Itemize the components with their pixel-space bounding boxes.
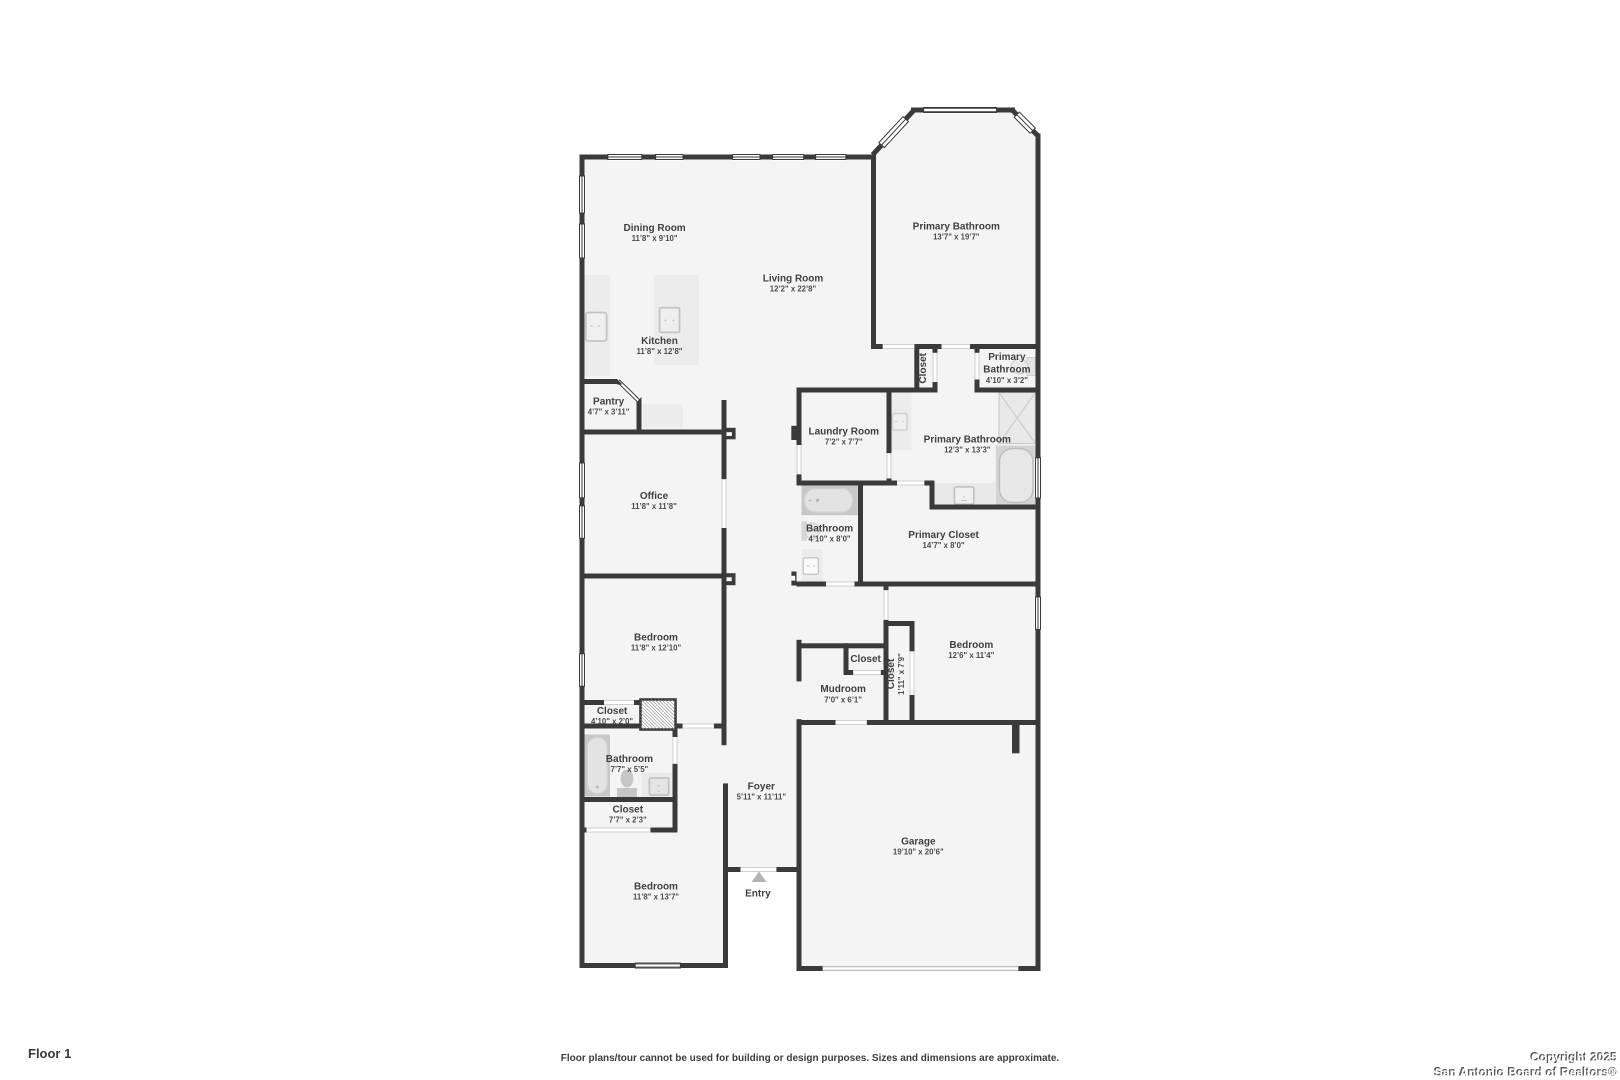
svg-text:11’8" x 9’10": 11’8" x 9’10" <box>632 234 678 243</box>
svg-text:12’2" x 22’8": 12’2" x 22’8" <box>770 285 817 294</box>
svg-text:Closet: Closet <box>613 804 644 815</box>
svg-text:Floor 1: Floor 1 <box>28 1046 71 1061</box>
svg-text:Bedroom: Bedroom <box>634 632 678 643</box>
svg-text:11’8" x 13’7": 11’8" x 13’7" <box>633 893 679 902</box>
svg-text:Closet: Closet <box>597 706 628 717</box>
svg-text:19’10" x 20’6": 19’10" x 20’6" <box>893 848 944 857</box>
svg-text:5’11" x 11’11": 5’11" x 11’11" <box>737 793 787 802</box>
svg-text:Office: Office <box>640 491 669 502</box>
svg-text:Garage: Garage <box>901 836 936 847</box>
svg-text:14’7" x 8’0": 14’7" x 8’0" <box>923 541 965 550</box>
svg-text:13’7" x 19’7": 13’7" x 19’7" <box>933 233 980 242</box>
svg-text:San Antonio Board of Realtors®: San Antonio Board of Realtors® <box>1435 1066 1618 1080</box>
svg-text:Dining Room: Dining Room <box>623 223 685 234</box>
svg-text:Living Room: Living Room <box>763 274 824 285</box>
svg-text:Bedroom: Bedroom <box>949 640 993 651</box>
svg-text:4’10" x 3’2": 4’10" x 3’2" <box>986 376 1028 385</box>
svg-text:Pantry: Pantry <box>593 397 625 408</box>
svg-text:Kitchen: Kitchen <box>641 336 678 347</box>
svg-text:11’8" x 12’8": 11’8" x 12’8" <box>637 347 683 356</box>
svg-text:4’7" x 3’11": 4’7" x 3’11" <box>588 408 630 417</box>
svg-text:Bathroom: Bathroom <box>983 365 1030 376</box>
svg-text:Primary: Primary <box>988 352 1026 363</box>
svg-text:Foyer: Foyer <box>748 782 775 793</box>
svg-text:Closet: Closet <box>886 658 897 689</box>
svg-text:12’3" x 13’3": 12’3" x 13’3" <box>944 446 991 455</box>
svg-text:Bedroom: Bedroom <box>634 882 678 893</box>
svg-text:11’8" x 12’10": 11’8" x 12’10" <box>631 644 682 653</box>
svg-text:7’2" x 7’7": 7’2" x 7’7" <box>825 438 863 447</box>
svg-text:Copyright 2025: Copyright 2025 <box>1531 1051 1618 1065</box>
svg-text:Laundry Room: Laundry Room <box>809 426 880 437</box>
svg-text:Primary Closet: Primary Closet <box>908 530 979 541</box>
svg-text:Closet: Closet <box>850 654 881 665</box>
svg-text:4’10" x 8’0": 4’10" x 8’0" <box>809 535 851 544</box>
svg-text:Closet: Closet <box>918 352 929 383</box>
svg-text:Floor plans/tour cannot be use: Floor plans/tour cannot be used for buil… <box>561 1053 1060 1064</box>
svg-text:Mudroom: Mudroom <box>820 684 866 695</box>
svg-text:7’7" x 5’5": 7’7" x 5’5" <box>611 765 649 774</box>
svg-text:11’8" x 11’8": 11’8" x 11’8" <box>631 502 677 511</box>
svg-text:12’6" x 11’4": 12’6" x 11’4" <box>948 651 994 660</box>
svg-text:Bathroom: Bathroom <box>806 523 853 534</box>
svg-text:7’0" x 6’1": 7’0" x 6’1" <box>824 695 862 704</box>
svg-text:4’10" x 2’0": 4’10" x 2’0" <box>591 717 633 726</box>
svg-text:Primary Bathroom: Primary Bathroom <box>913 222 1000 233</box>
svg-text:Bathroom: Bathroom <box>606 754 653 765</box>
svg-text:1’11" x 7’9": 1’11" x 7’9" <box>897 653 906 695</box>
svg-text:Primary Bathroom: Primary Bathroom <box>924 435 1011 446</box>
svg-text:Entry: Entry <box>745 889 771 900</box>
svg-text:7’7" x 2’3": 7’7" x 2’3" <box>609 816 647 825</box>
